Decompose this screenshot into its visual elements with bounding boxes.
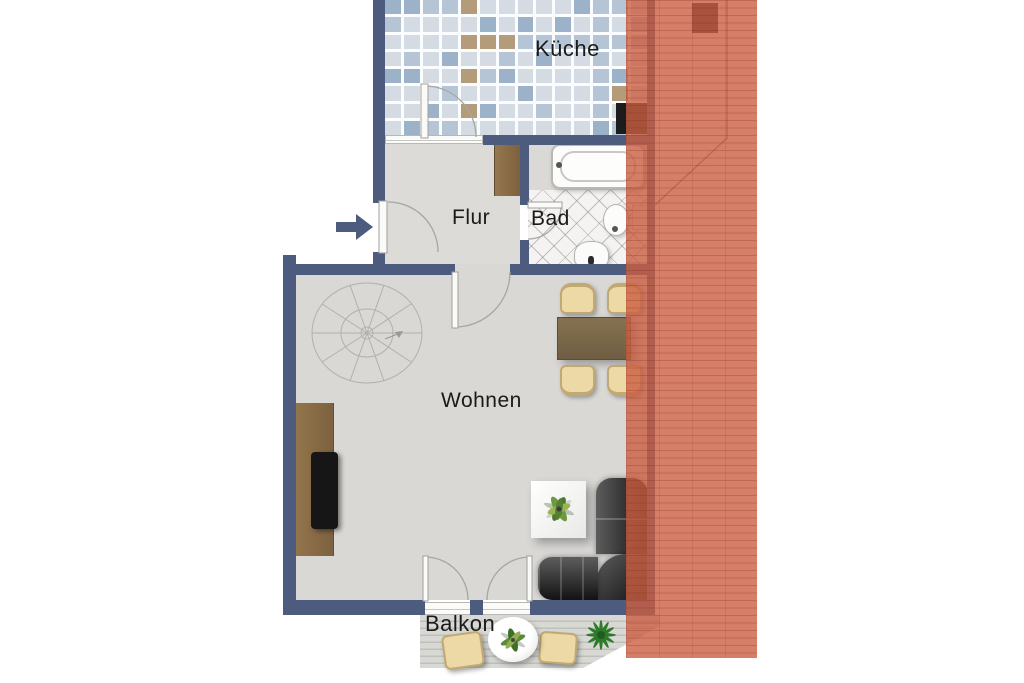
entrance-arrow-icon (336, 214, 373, 240)
spiral-staircase (312, 283, 422, 383)
room-label-balkon: Balkon (425, 611, 495, 637)
floor-plan: Küche Flur Bad Wohnen Balkon (0, 0, 1024, 683)
entrance-door-leaf (379, 201, 387, 253)
kitchen-door-leaf (421, 84, 428, 138)
door-leaves (379, 84, 562, 601)
room-label-bad: Bad (531, 207, 570, 231)
balcony-door-left-arc (425, 557, 468, 600)
plan-linework (0, 0, 1024, 683)
flur-wohnen-door-leaf (452, 272, 458, 328)
neighbor-outline (655, 0, 727, 205)
flur-wohnen-door-arc (455, 272, 510, 327)
entrance-door-arc (388, 202, 438, 252)
balcony-door-left-leaf (423, 556, 428, 601)
doors (388, 86, 561, 600)
kitchen-door-arc (425, 86, 476, 137)
balcony-door-right-arc (487, 557, 530, 600)
room-label-wohnen: Wohnen (441, 389, 522, 413)
balcony-door-right-leaf (527, 556, 532, 601)
room-label-flur: Flur (452, 206, 490, 230)
room-label-kueche: Küche (535, 36, 600, 62)
